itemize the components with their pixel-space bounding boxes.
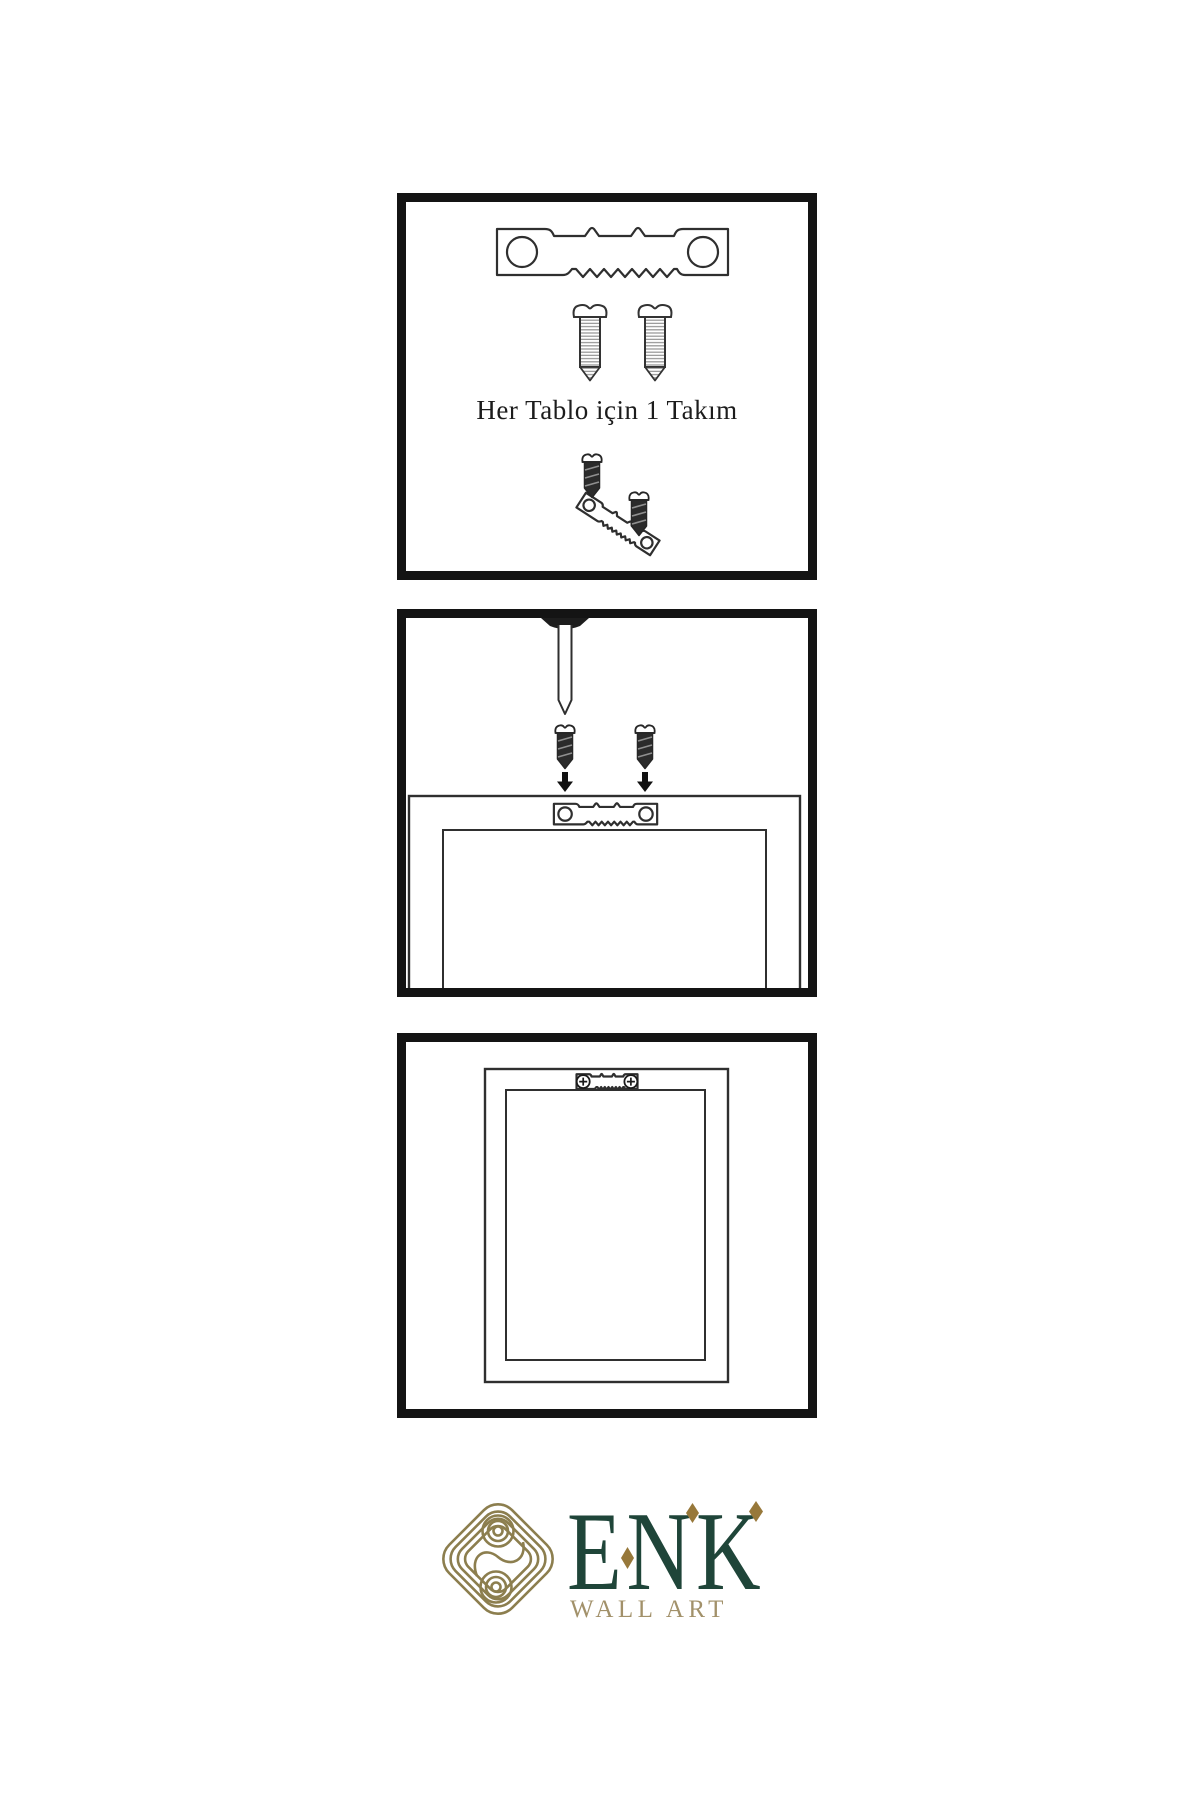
phillips-screw-icon: [577, 1075, 590, 1088]
knot-emblem-icon: [433, 1490, 563, 1628]
brand-subtitle: WALL ART: [570, 1596, 728, 1624]
screw-icon: [574, 305, 607, 380]
diamond-accent-icon: [749, 1501, 763, 1522]
hardware-set-illustration: [406, 202, 808, 571]
mounting-step-illustration: [406, 618, 808, 988]
down-arrow-icon: [557, 772, 573, 792]
mounted-result-illustration: [406, 1042, 808, 1409]
diamond-accent-icon: [621, 1547, 634, 1569]
frame-back-inner-outline: [443, 830, 766, 988]
phillips-screw-icon: [624, 1075, 637, 1088]
hardware-set-caption: Her Tablo için 1 Takım: [406, 395, 808, 426]
sawtooth-hanger-icon: [497, 228, 728, 277]
instruction-sheet: Her Tablo için 1 Takım: [0, 0, 1200, 1800]
dark-screw-icon: [635, 725, 654, 768]
dark-screw-icon: [555, 725, 574, 768]
nail-icon: [541, 618, 589, 714]
dark-screw-icon: [582, 454, 601, 497]
instruction-panel-mounting-step: [397, 609, 817, 997]
down-arrow-icon: [637, 772, 653, 792]
frame-back-inner-outline: [506, 1090, 705, 1360]
brand-wordmark: ENK: [567, 1496, 766, 1608]
instruction-panel-hardware-set: Her Tablo için 1 Takım: [397, 193, 817, 580]
sawtooth-hanger-icon: [554, 803, 657, 825]
diamond-accent-icon: [686, 1503, 699, 1523]
instruction-panel-mounted-result: [397, 1033, 817, 1418]
screw-icon: [639, 305, 672, 380]
